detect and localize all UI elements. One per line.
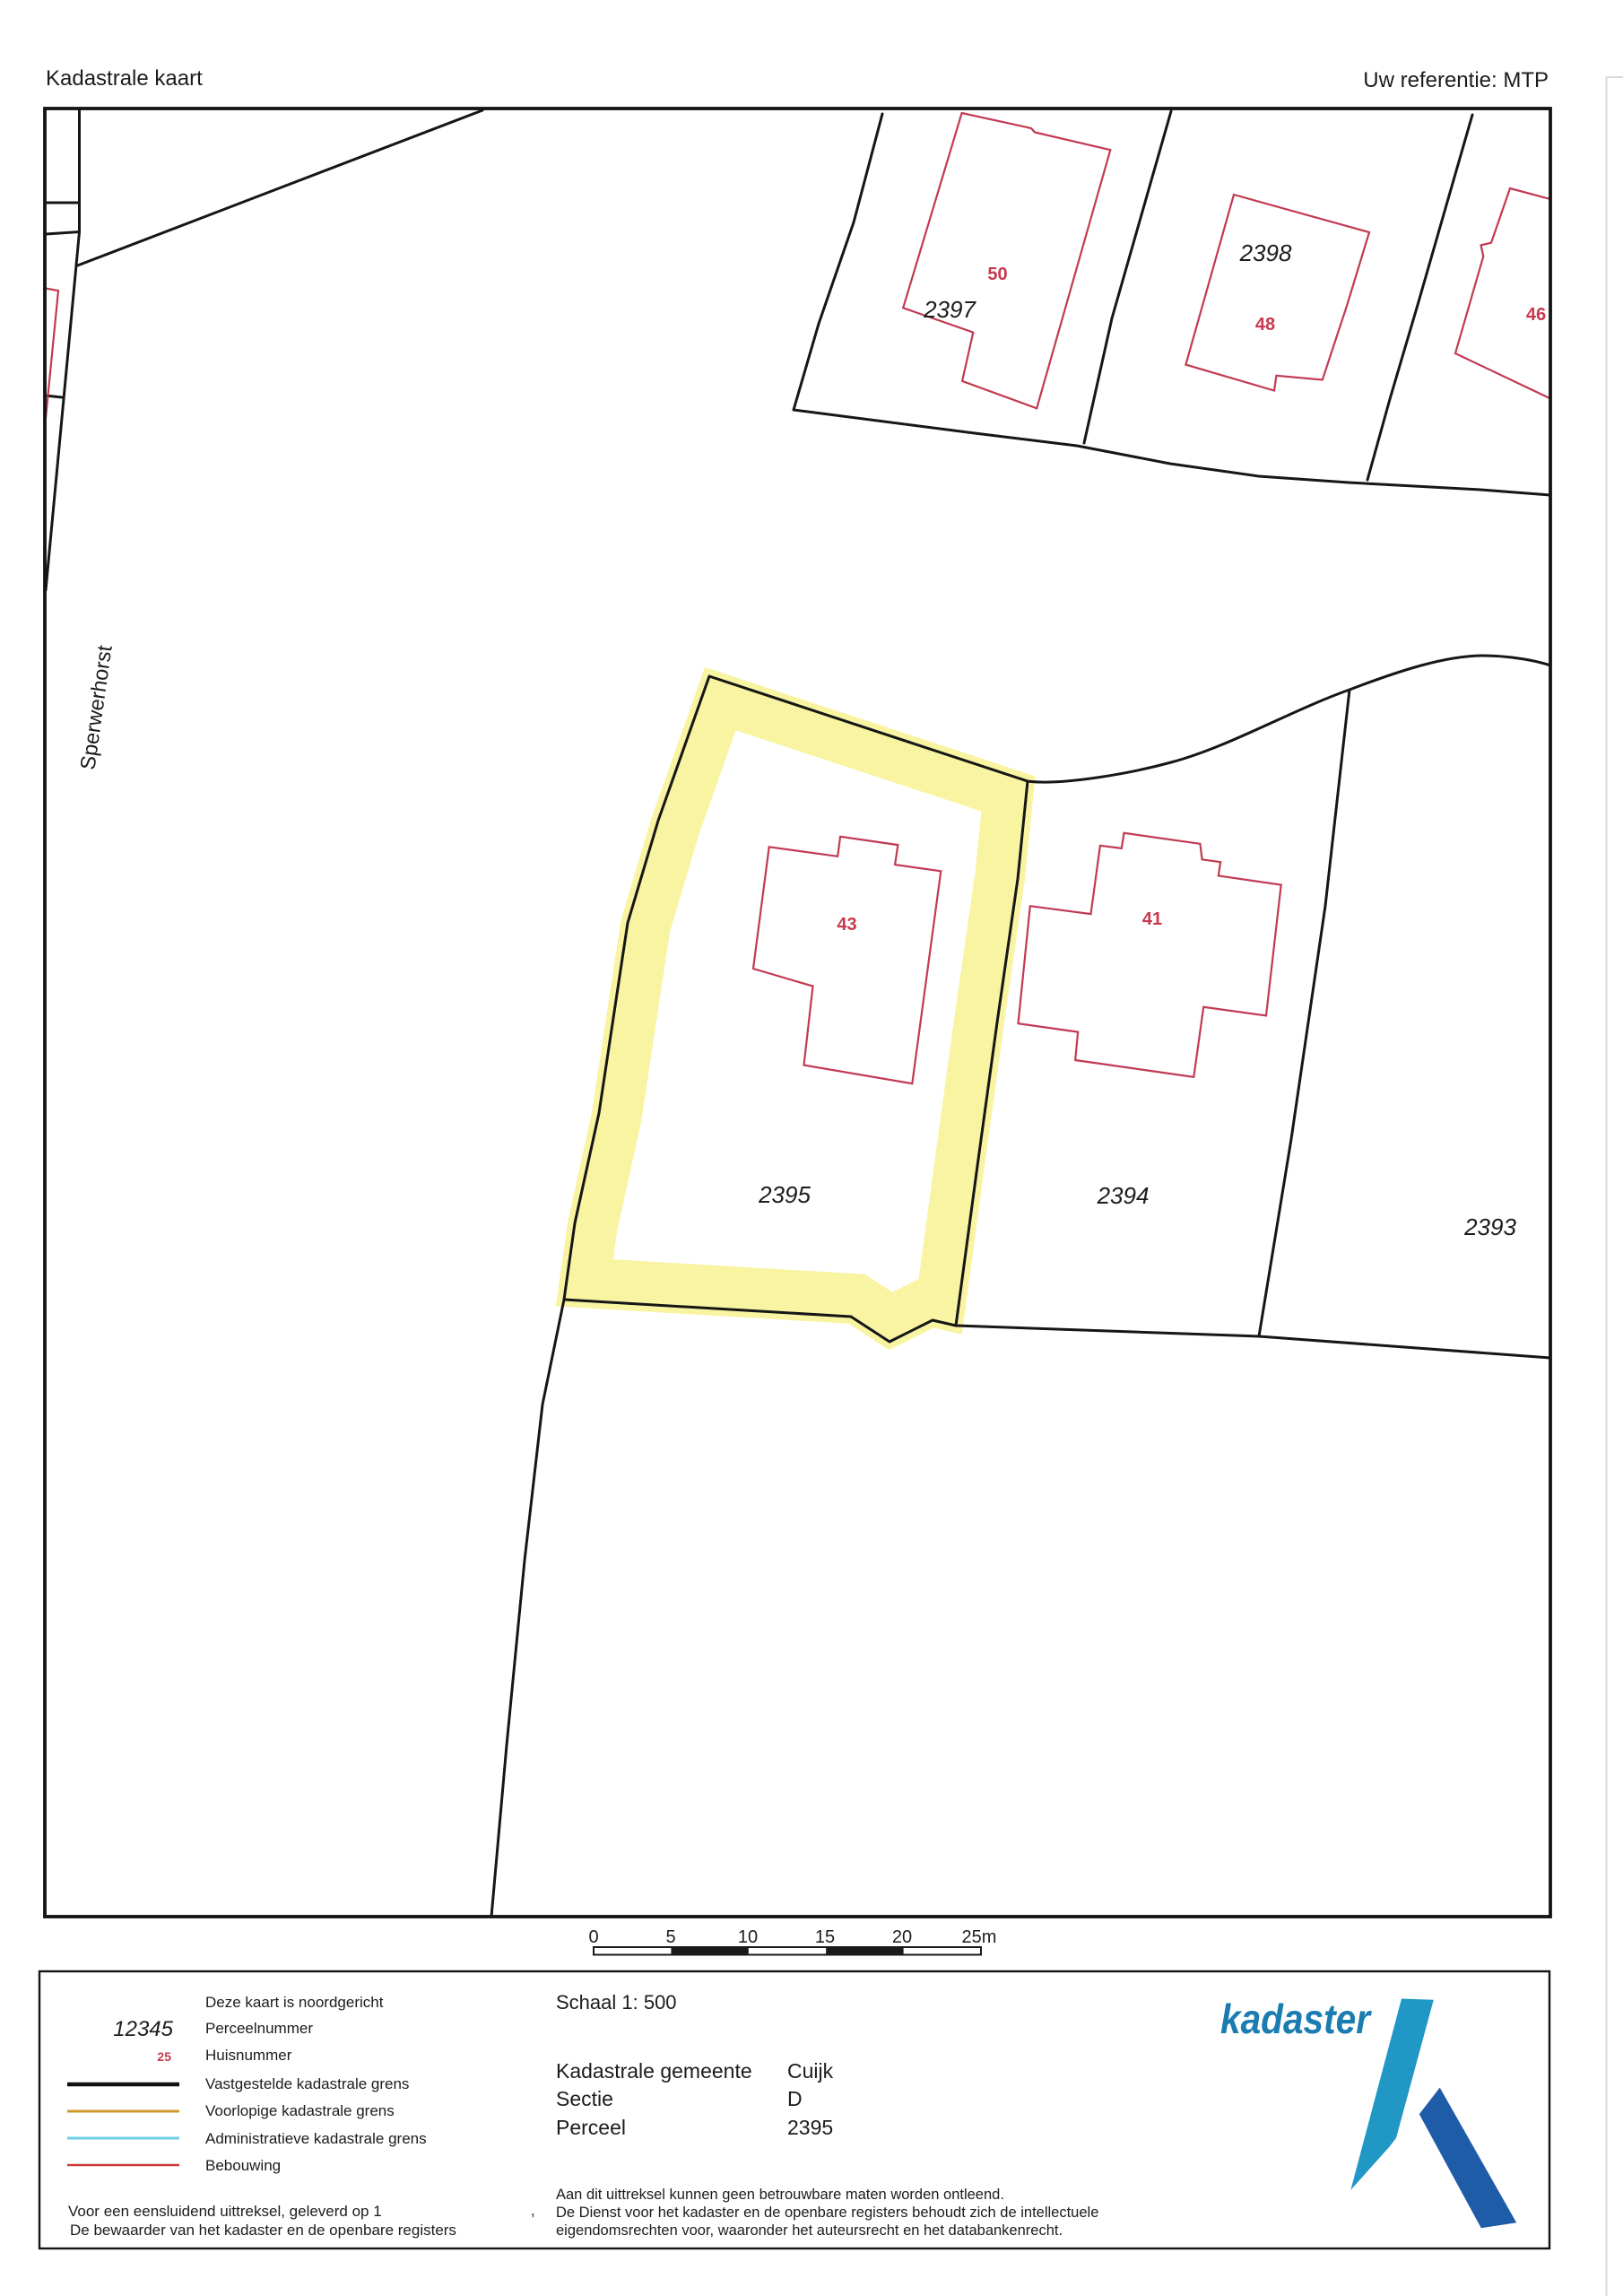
svg-text:Schaal 1: 500: Schaal 1: 500 [556,1991,677,2013]
svg-text:41: 41 [1142,909,1162,929]
svg-text:D: D [787,2087,803,2110]
svg-text:eigendomsrechten voor, waarond: eigendomsrechten voor, waaronder het aut… [556,2222,1063,2239]
svg-text:46: 46 [1526,305,1546,325]
svg-text:50: 50 [987,265,1007,284]
svg-text:15: 15 [815,1927,835,1947]
svg-text:2394: 2394 [1097,1182,1150,1209]
svg-text:2398: 2398 [1239,239,1292,266]
svg-text:43: 43 [837,915,856,935]
svg-text:Huisnummer: Huisnummer [205,2047,292,2064]
svg-text:Aan dit uittreksel kunnen geen: Aan dit uittreksel kunnen geen betrouwba… [556,2187,1004,2203]
svg-text:5: 5 [665,1927,675,1947]
svg-text:Bebouwing: Bebouwing [205,2157,281,2174]
svg-text:10: 10 [738,1927,758,1947]
svg-text:Vastgestelde kadastrale grens: Vastgestelde kadastrale grens [205,2075,409,2092]
svg-text:0: 0 [588,1927,598,1947]
svg-text:25: 25 [157,2049,171,2064]
svg-text:Deze kaart is noordgericht: Deze kaart is noordgericht [205,1994,384,2011]
svg-text:,: , [531,2203,535,2219]
svg-text:2397: 2397 [923,296,976,323]
svg-text:Perceel: Perceel [556,2116,626,2139]
svg-text:kadaster: kadaster [1220,1996,1372,2042]
svg-text:25m: 25m [962,1927,997,1947]
svg-text:De bewaarder van het kadaster: De bewaarder van het kadaster en de open… [70,2222,456,2239]
svg-text:Perceelnummer: Perceelnummer [205,2020,313,2037]
svg-text:Cuijk: Cuijk [787,2059,834,2083]
svg-text:48: 48 [1255,315,1275,335]
svg-text:Voor een eensluidend uittrekse: Voor een eensluidend uittreksel, gelever… [68,2203,382,2220]
svg-text:Sectie: Sectie [556,2087,613,2110]
svg-text:Kadastrale kaart: Kadastrale kaart [46,66,203,91]
svg-text:De Dienst voor het kadaster en: De Dienst voor het kadaster en de openba… [556,2205,1098,2221]
svg-text:Administratieve kadastrale gre: Administratieve kadastrale grens [205,2130,427,2147]
svg-text:20: 20 [892,1927,912,1947]
svg-text:2395: 2395 [758,1181,811,1208]
svg-text:Voorlopige kadastrale grens: Voorlopige kadastrale grens [205,2102,395,2119]
svg-text:Uw referentie: MTP: Uw referentie: MTP [1363,68,1549,92]
svg-text:12345: 12345 [113,2017,173,2041]
svg-text:Kadastrale gemeente: Kadastrale gemeente [556,2059,752,2083]
svg-text:2395: 2395 [787,2116,833,2139]
svg-text:2393: 2393 [1463,1213,1516,1240]
